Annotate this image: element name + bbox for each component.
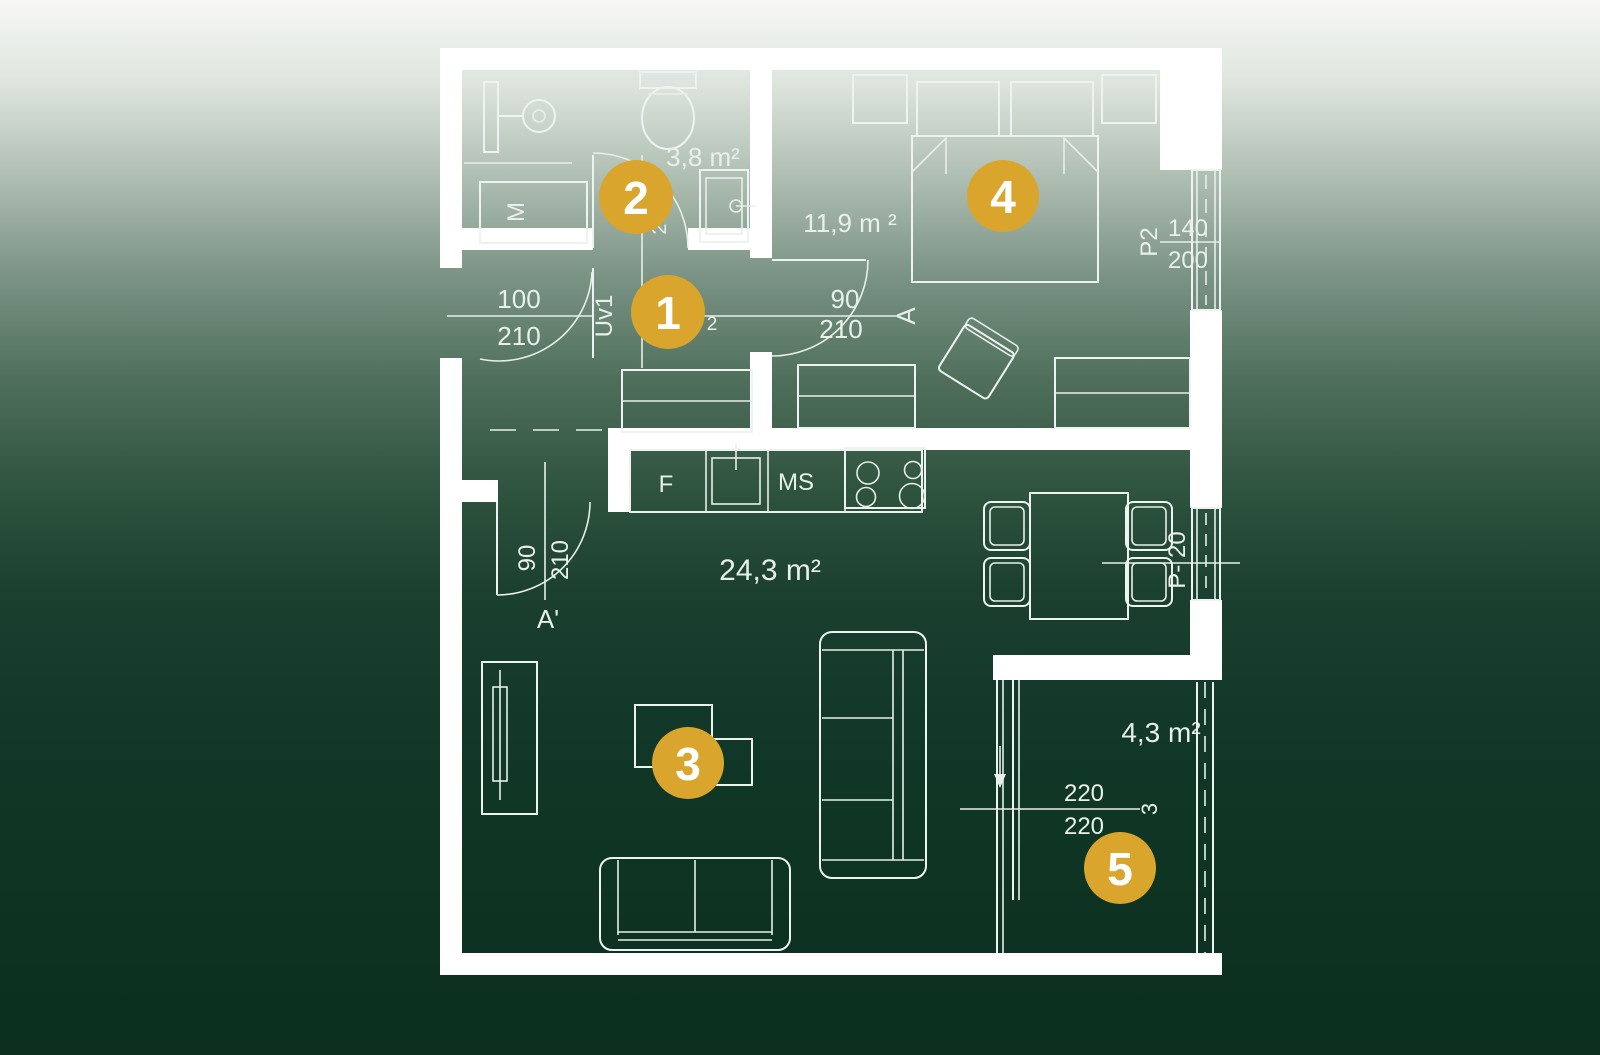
section-marker-a-prime: A': [537, 604, 559, 634]
window-p2-width: 140: [1168, 215, 1208, 242]
kitchen-counter: F MS: [630, 444, 925, 512]
tv-cabinet-icon: [482, 662, 537, 814]
slide-direction-arrow-icon: [994, 746, 1006, 788]
hallway: 100 210 Uv1 2: [447, 268, 752, 432]
wall-bath-bedroom: [750, 48, 772, 250]
marker-number: 1: [655, 287, 681, 339]
room-marker-1[interactable]: 1: [631, 275, 705, 349]
living-door: 90 210 A': [497, 462, 590, 634]
sofa-large-icon: [820, 632, 926, 878]
balcony-door-ref: 3: [1137, 803, 1162, 815]
balcony-door-dimension: 220 220 3: [960, 780, 1162, 840]
living-door-height: 210: [547, 540, 574, 580]
room-marker-3[interactable]: 3: [652, 727, 724, 799]
window-p20-id: P- 20: [1164, 531, 1191, 588]
dining-chair: [984, 558, 1030, 606]
bedroom-area-label: 11,9 m ²: [803, 208, 897, 238]
wall-hall-living: [462, 480, 498, 502]
marker-number: 3: [675, 738, 701, 790]
window-p2: 140 200 P2: [1136, 170, 1221, 310]
entrance-door: 100 210 Uv1: [447, 268, 618, 361]
balcony-door-width: 220: [1064, 780, 1104, 807]
marker-number: 2: [623, 172, 649, 224]
washbasin-icon: [484, 82, 555, 152]
window-p2-height: 200: [1168, 247, 1208, 274]
dining-table-icon: [984, 493, 1172, 619]
room-marker-5[interactable]: 5: [1084, 832, 1156, 904]
bathroom-area-label: 3,8 m²: [666, 142, 740, 172]
wall-right-top-corner: [1160, 48, 1222, 170]
entrance-door-height: 210: [497, 321, 540, 351]
wall-hall-bedroom-top: [750, 250, 772, 258]
wall-bath-bottom-left: [440, 228, 593, 250]
bedroom-door-width: 90: [831, 284, 860, 314]
sofa-small-icon: [600, 858, 790, 950]
bedroom-door-height: 210: [819, 314, 862, 344]
balcony-door-height: 220: [1064, 813, 1104, 840]
marker-number: 4: [990, 171, 1016, 223]
room-marker-4[interactable]: 4: [967, 160, 1039, 232]
wall-balcony-top: [993, 655, 1222, 680]
hallway-area-fragment: 2: [707, 314, 718, 335]
kitchen-sink-icon: [712, 444, 760, 504]
floorplan-drawing: M 3,8 m² 2 100 210 Uv1 2: [0, 0, 1600, 1055]
stove-icon: [845, 448, 925, 509]
living-area-label: 24,3 m²: [719, 554, 821, 587]
wall-bottom: [440, 953, 1222, 975]
bedroom-door: 90 210 A: [700, 260, 921, 356]
balcony-area-label: 4,3 m²: [1121, 717, 1200, 748]
floorplan-page: M 3,8 m² 2 100 210 Uv1 2: [0, 0, 1600, 1055]
toilet-icon: [640, 72, 696, 149]
dining-chair: [984, 502, 1030, 550]
entrance-door-id: Uv1: [591, 295, 618, 338]
bedroom: 11,9 m ² 90 210 A 140 200 P2: [700, 75, 1221, 428]
room-marker-2[interactable]: 2: [599, 160, 673, 234]
armchair-icon: [937, 317, 1019, 400]
balcony: 4,3 m² 220 220 3: [960, 680, 1213, 953]
window-p2-id: P2: [1136, 227, 1163, 256]
entrance-door-width: 100: [497, 284, 540, 314]
wall-right-mid: [1190, 310, 1222, 508]
wall-top: [440, 48, 1222, 70]
kitchen-ms-label: MS: [778, 469, 814, 496]
marker-number: 5: [1107, 843, 1133, 895]
living-door-width: 90: [514, 545, 541, 572]
fridge-label: F: [659, 471, 674, 498]
section-marker-a: A: [891, 307, 921, 325]
wall-kitchen-left: [608, 450, 630, 512]
washing-machine-label: M: [503, 202, 530, 222]
wall-left-lower: [440, 358, 462, 975]
